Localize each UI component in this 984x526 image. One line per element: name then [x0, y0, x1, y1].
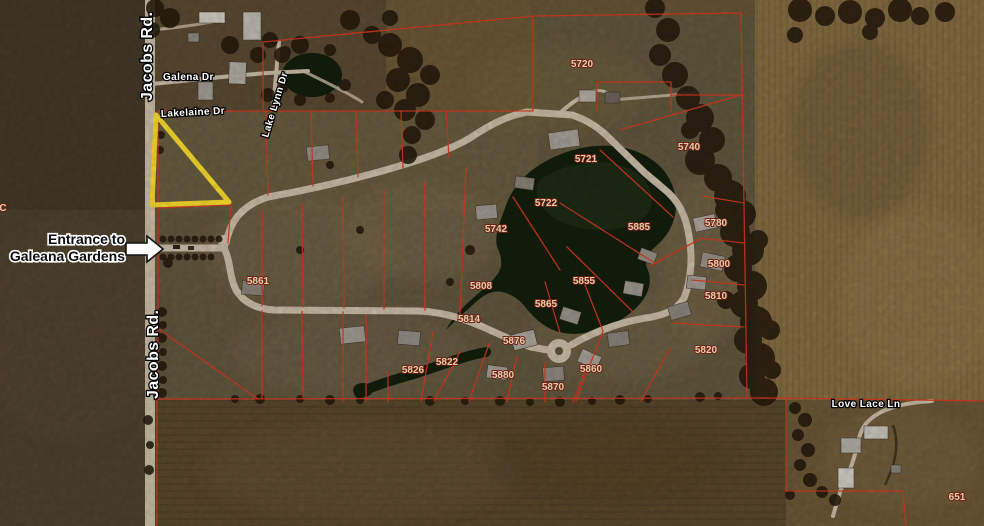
lot-number-label: 5822	[436, 357, 459, 368]
street-label-jacobs-rd-top: Jacobs Rd.	[139, 12, 156, 101]
lot-number-label: 5742	[485, 224, 508, 235]
street-label-galena-dr: Galena Dr	[163, 72, 214, 83]
lot-number-label: 5810	[705, 291, 728, 302]
lot-number-label: 5740	[678, 142, 701, 153]
lot-number-label: 5800	[708, 259, 731, 270]
lot-number-label: 5820	[695, 345, 718, 356]
entrance-annotation-line1: Entrance to	[48, 231, 125, 247]
lot-number-label: 5870	[542, 382, 565, 393]
entrance-annotation-line2: Galeana Gardens	[10, 248, 125, 264]
lot-number-label: 5814	[458, 314, 481, 325]
lot-number-label: 5720	[571, 59, 594, 70]
lot-number-label: 5855	[573, 276, 596, 287]
lot-number-label: 5826	[402, 365, 425, 376]
lot-number-label: 5885	[628, 222, 651, 233]
lot-number-label: 5808	[470, 281, 493, 292]
edge-watermark-letter: C	[0, 203, 7, 214]
lot-number-label: 5721	[575, 154, 598, 165]
lot-number-label: 5722	[535, 198, 558, 209]
aerial-plat-map: Jacobs Rd. Jacobs Rd. Galena Dr Lakelain…	[0, 0, 984, 526]
map-canvas: Jacobs Rd. Jacobs Rd. Galena Dr Lakelain…	[0, 0, 984, 526]
lot-number-label: 5880	[492, 370, 515, 381]
lot-number-label: 5780	[705, 218, 728, 229]
lot-number-label: 5861	[247, 276, 270, 287]
lot-number-label: 5876	[503, 336, 526, 347]
lot-number-label: 5860	[580, 364, 603, 375]
street-label-jacobs-rd-bottom: Jacobs Rd.	[145, 310, 162, 399]
street-label-love-lace-ln: Love Lace Ln	[832, 399, 901, 410]
lot-number-label: 5865	[535, 299, 558, 310]
parcel-651-label: 651	[949, 492, 966, 503]
